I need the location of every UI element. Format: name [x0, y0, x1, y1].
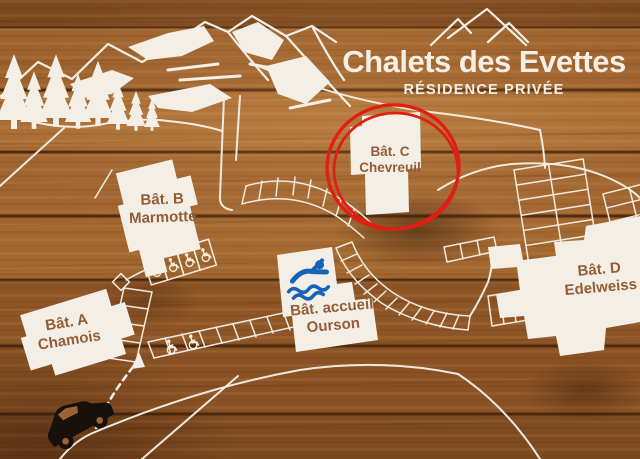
building-c-name: Bât. C	[330, 144, 450, 160]
wheelchair-icon	[187, 333, 199, 349]
page-title: Chalets des Evettes	[326, 44, 640, 80]
mountain-peaks-icon	[431, 9, 528, 45]
page-subtitle: RÉSIDENCE PRIVÉE	[326, 82, 640, 98]
building-c-label: Bât. C Chevreuil	[330, 144, 450, 176]
wooden-map-sign: Chalets des Evettes RÉSIDENCE PRIVÉE Bât…	[0, 0, 640, 459]
building-b-label: Bât. B Marmotte	[99, 189, 225, 229]
wheelchair-icon	[199, 247, 211, 263]
wheelchair-icon	[165, 338, 177, 354]
wheelchair-icon	[183, 252, 195, 268]
wheelchair-icon	[167, 257, 179, 273]
building-c-subtitle: Chevreuil	[330, 160, 450, 176]
car-icon	[38, 386, 120, 454]
pine-tree-icons	[0, 54, 160, 131]
parking-row-center	[242, 177, 372, 238]
